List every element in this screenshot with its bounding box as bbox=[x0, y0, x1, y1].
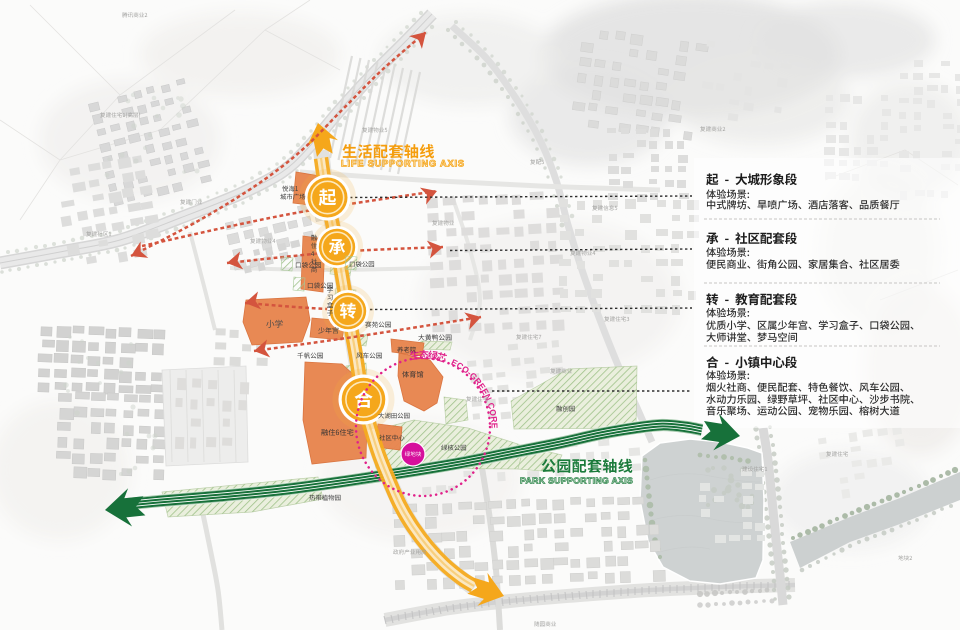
svg-text:PARK SUPPORTING AXIS: PARK SUPPORTING AXIS bbox=[520, 476, 633, 486]
svg-text:LIFE SUPPORTING AXIS: LIFE SUPPORTING AXIS bbox=[341, 159, 465, 169]
